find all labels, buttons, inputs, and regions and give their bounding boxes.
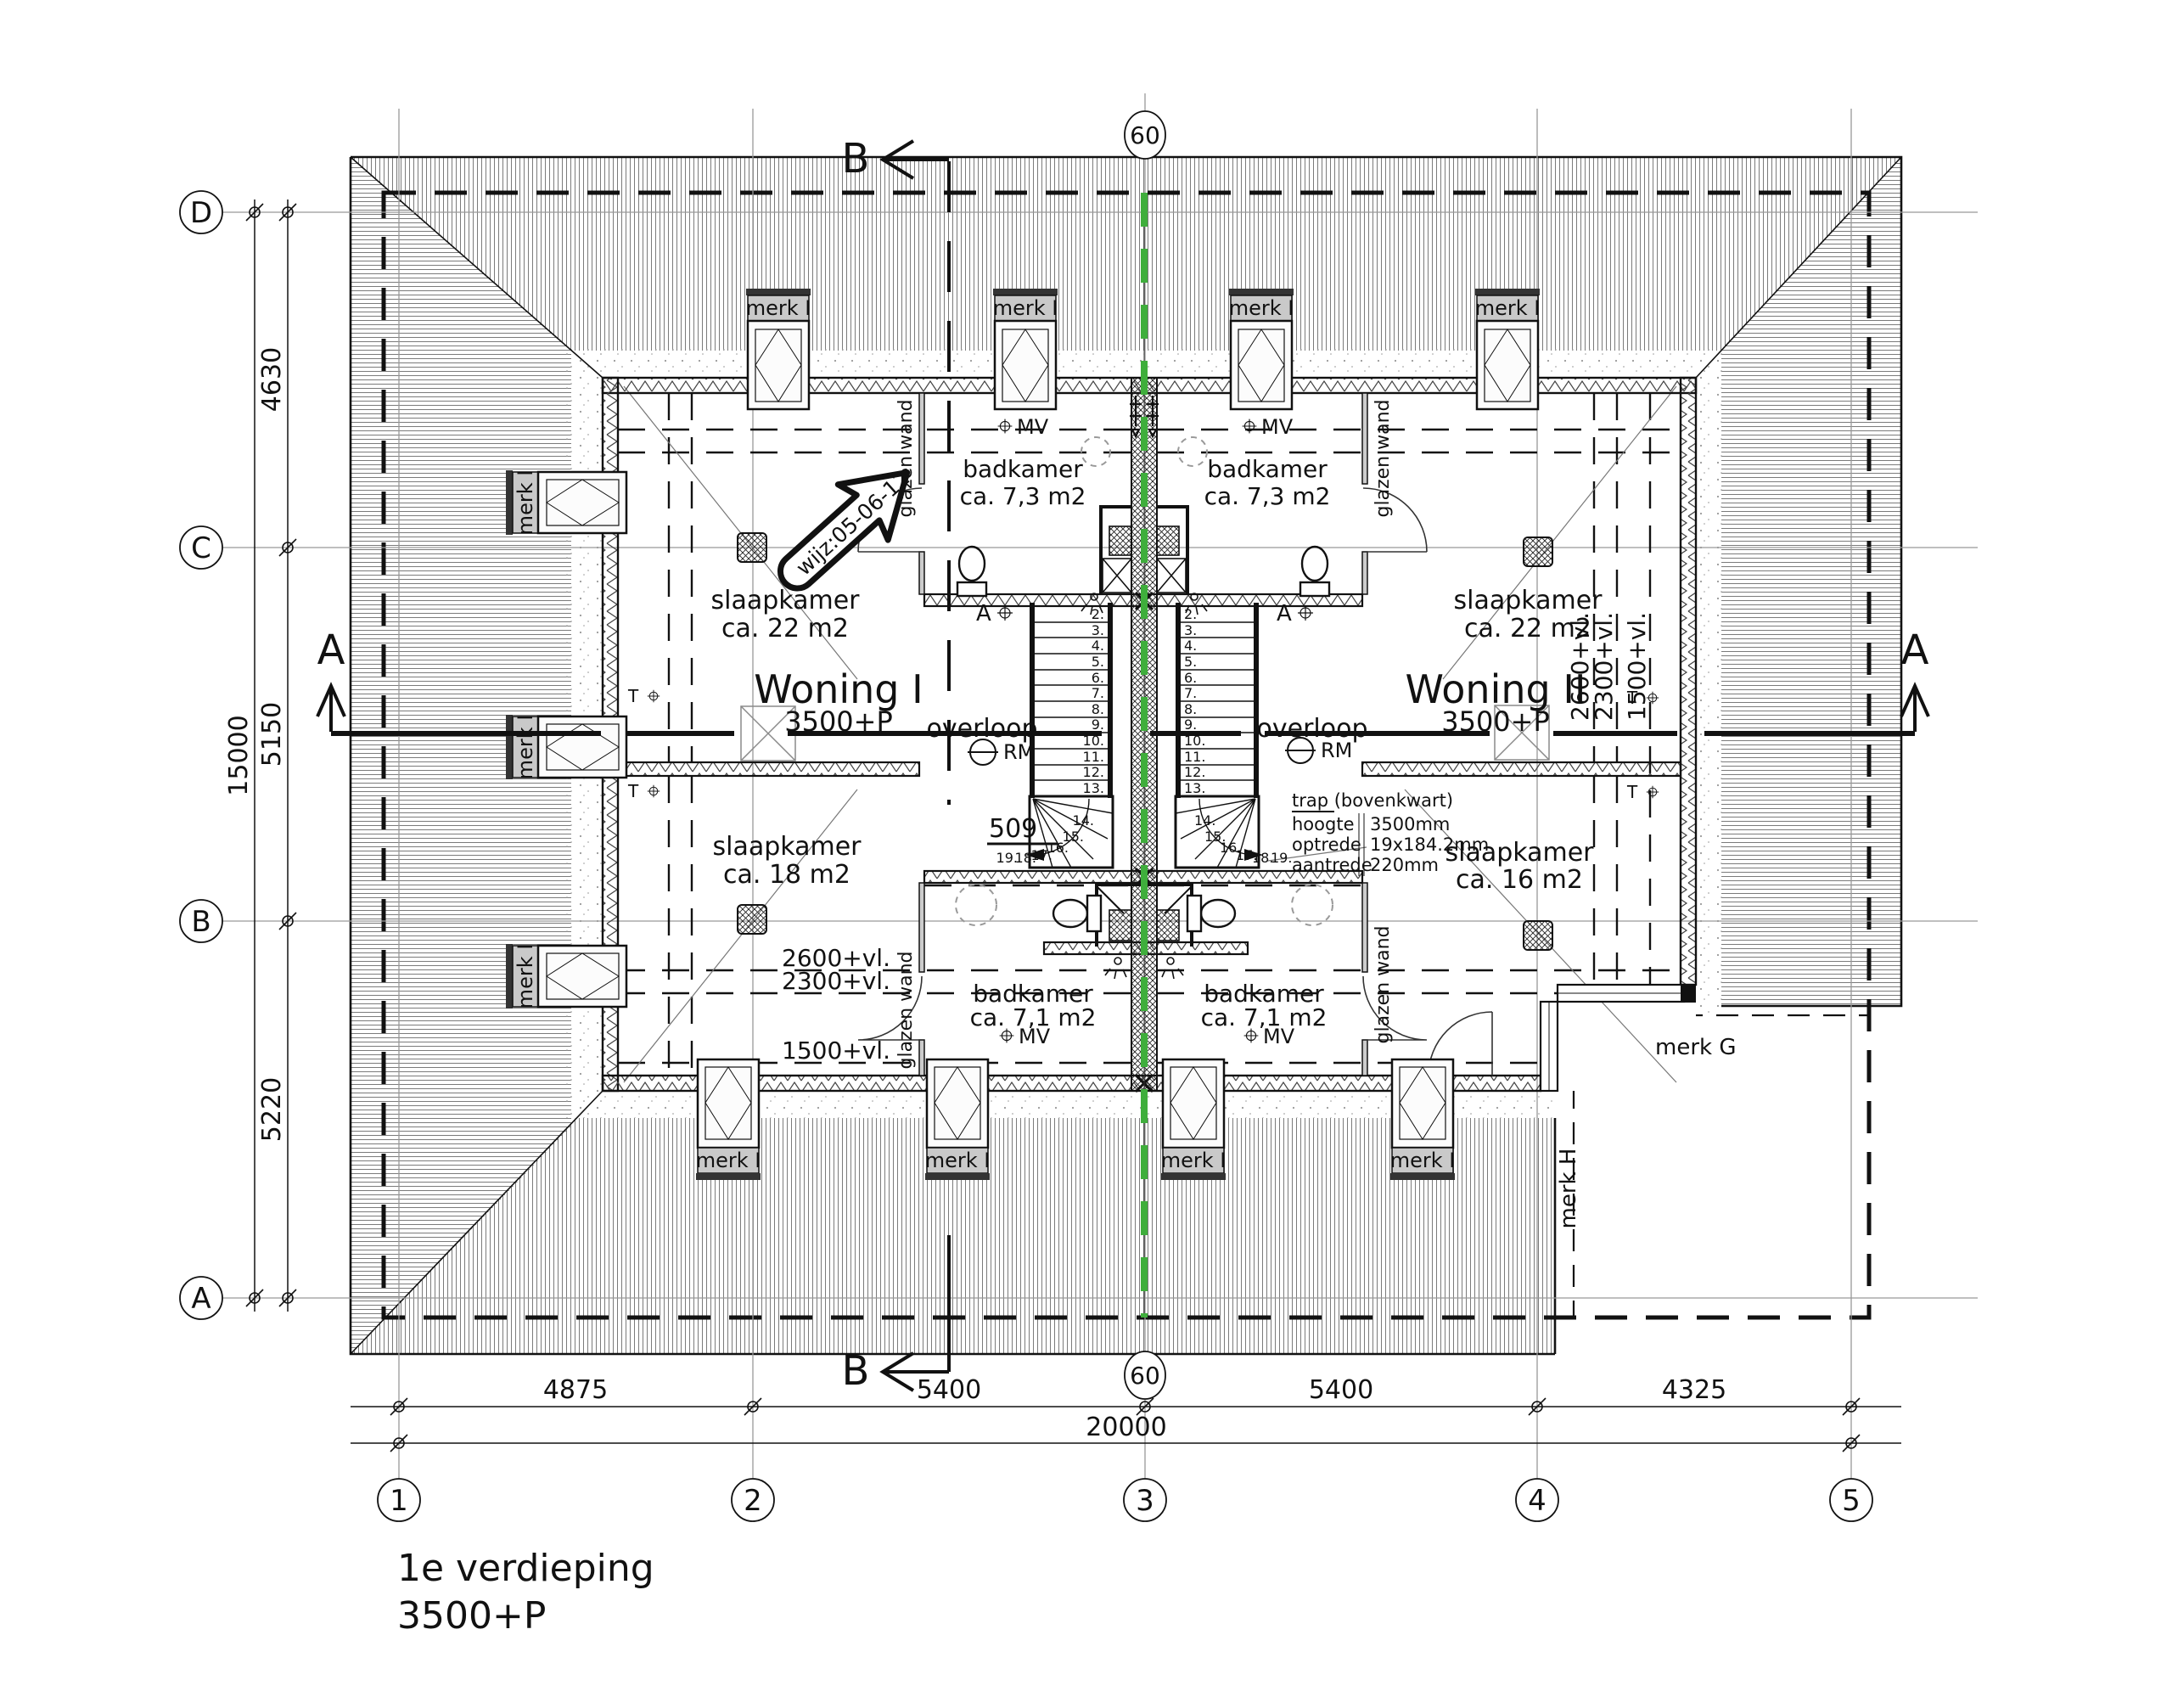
grid-col-label: 5 xyxy=(1842,1484,1861,1518)
trap-key: aantrede xyxy=(1292,855,1372,875)
merk-g-label: merk G xyxy=(1655,1035,1736,1060)
tread-number: 7. xyxy=(1184,685,1197,701)
dim-5400: 5400 xyxy=(917,1375,981,1405)
merk-i-label: merk I xyxy=(514,715,537,780)
merk-i-label: merk I xyxy=(514,944,537,1009)
glass-wall-label: glazen wand xyxy=(895,952,917,1070)
trap-title: trap (bovenkwart) xyxy=(1292,790,1453,811)
mv-label: MV xyxy=(1261,415,1294,439)
tread-number: 6. xyxy=(1092,670,1104,686)
merk-i-label: merk I xyxy=(1390,1149,1456,1172)
height-2300: 2300+vl. xyxy=(1590,612,1618,721)
merk-i-label: merk I xyxy=(1161,1149,1227,1172)
section-b-label: B xyxy=(842,135,870,183)
t-label: T xyxy=(1626,782,1638,802)
a-marker-label: A xyxy=(976,601,991,626)
grid-row-label: A xyxy=(191,1282,211,1316)
axis-60-label: 60 xyxy=(1130,121,1160,149)
height-2300: 2300+vl. xyxy=(782,967,890,995)
tread-number: 9. xyxy=(1184,716,1197,733)
room-label: slaapkamer xyxy=(1453,586,1603,615)
tread-number: 13. xyxy=(1083,780,1104,796)
dim-20000: 20000 xyxy=(1086,1413,1166,1442)
dormer-top: merk I xyxy=(993,289,1058,409)
grid-row-label: D xyxy=(190,196,212,230)
merk-i-label: merk I xyxy=(993,296,1058,320)
room-label: badkamer xyxy=(963,455,1083,483)
t-label: T xyxy=(627,686,639,706)
dim-4630: 4630 xyxy=(257,347,287,412)
tread-number: 4. xyxy=(1184,638,1197,654)
tread-number: 5. xyxy=(1092,654,1104,670)
a-marker-label: A xyxy=(1277,601,1292,626)
tread-number: 13. xyxy=(1184,780,1205,796)
trap-value: 19x184.2mm xyxy=(1370,834,1489,855)
tread-number: 18. xyxy=(1015,850,1036,866)
merk-h-label: merk H xyxy=(1556,1149,1581,1229)
room-label: badkamer xyxy=(1207,455,1328,483)
stair-ref-509: 509 xyxy=(989,814,1037,844)
room-label: slaapkamer xyxy=(712,832,862,862)
room-area: ca. 18 m2 xyxy=(723,860,850,890)
dormer-bottom: merk I xyxy=(1161,1059,1227,1180)
grid-col-label: 2 xyxy=(744,1484,762,1518)
room-area: ca. 7,3 m2 xyxy=(1204,482,1331,510)
tread-number: 5. xyxy=(1184,654,1197,670)
dormer-left: merk I xyxy=(506,715,626,780)
merk-i-label: merk I xyxy=(696,1149,761,1172)
tread-number: 7. xyxy=(1092,685,1104,701)
tread-number: 3. xyxy=(1184,622,1197,638)
tread-number: 8. xyxy=(1184,701,1197,717)
grid-col-label: 3 xyxy=(1136,1484,1154,1518)
dormer-bottom: merk I xyxy=(1390,1059,1456,1180)
trap-value: 3500mm xyxy=(1370,814,1450,834)
tread-number: 6. xyxy=(1184,670,1197,686)
grid-row-label: B xyxy=(191,905,211,939)
merk-i-label: merk I xyxy=(1475,296,1541,320)
glass-wall-label: glazen wand xyxy=(1372,400,1394,518)
tread-number: 2. xyxy=(1184,606,1197,622)
dormer-left: merk I xyxy=(506,944,626,1009)
height-1500: 1500+vl. xyxy=(782,1037,890,1065)
mv-label: MV xyxy=(1263,1025,1295,1048)
room-area: ca. 22 m2 xyxy=(721,614,849,643)
grid-row-label: C xyxy=(191,531,211,565)
grid-col-label: 1 xyxy=(390,1484,408,1518)
dormer-bottom: merk I xyxy=(696,1059,761,1180)
window-band-merk-h xyxy=(1541,1002,1558,1091)
tread-number: 14. xyxy=(1073,812,1094,829)
tread-number: 9. xyxy=(1092,716,1104,733)
dormer-bottom: merk I xyxy=(925,1059,991,1180)
rm-label: RM xyxy=(1321,739,1352,762)
tread-number: 12. xyxy=(1184,764,1205,780)
dormer-top: merk I xyxy=(746,289,811,409)
grid-bubbles-left: D C B A xyxy=(180,191,222,1319)
tread-number: 19. xyxy=(996,850,1018,866)
merk-i-label: merk I xyxy=(746,296,811,320)
merk-i-label: merk I xyxy=(1229,296,1294,320)
woning2-level: 3500+P xyxy=(1441,705,1550,738)
axis-60-label: 60 xyxy=(1130,1362,1160,1390)
tread-number: 19. xyxy=(1271,850,1292,866)
dormer-left: merk I xyxy=(506,470,626,536)
dormer-top: merk I xyxy=(1475,289,1541,409)
tread-number: 12. xyxy=(1083,764,1104,780)
t-label: T xyxy=(1626,688,1638,708)
dim-5220: 5220 xyxy=(257,1077,287,1142)
section-b-label: B xyxy=(842,1347,870,1395)
window-band-merk-g xyxy=(1558,985,1684,1002)
dim-4325: 4325 xyxy=(1662,1375,1726,1405)
rm-label: RM xyxy=(1003,740,1035,764)
tread-number: 11. xyxy=(1184,749,1205,765)
room-area: ca. 7,3 m2 xyxy=(960,482,1086,510)
dim-15000: 15000 xyxy=(224,715,254,795)
tread-number: 4. xyxy=(1092,638,1104,654)
glass-wall-label: glazen wand xyxy=(1372,926,1394,1044)
dim-4875: 4875 xyxy=(543,1375,608,1405)
dim-5400: 5400 xyxy=(1309,1375,1373,1405)
trap-key: hoogte xyxy=(1292,814,1355,834)
title-line1: 1e verdieping xyxy=(397,1547,654,1590)
trap-key: optrede xyxy=(1292,834,1361,855)
tread-number: 2. xyxy=(1092,606,1104,622)
merk-i-label: merk I xyxy=(925,1149,991,1172)
tread-number: 3. xyxy=(1092,622,1104,638)
dim-5150: 5150 xyxy=(257,702,287,767)
mv-label: MV xyxy=(1017,415,1049,439)
mv-label: MV xyxy=(1019,1025,1051,1048)
section-a-label: A xyxy=(317,626,345,674)
room-area: ca. 16 m2 xyxy=(1456,865,1583,895)
woning1-level: 3500+P xyxy=(784,705,893,738)
dormer-top: merk I xyxy=(1229,289,1294,409)
title-line2: 3500+P xyxy=(397,1594,546,1638)
trap-value: 220mm xyxy=(1370,855,1439,875)
section-a-label: A xyxy=(1901,626,1929,674)
merk-i-label: merk I xyxy=(514,470,537,536)
drawing-title: 1e verdieping 3500+P xyxy=(397,1547,654,1638)
tread-number: 14. xyxy=(1194,812,1215,829)
tread-number: 11. xyxy=(1083,749,1104,765)
grid-col-label: 4 xyxy=(1528,1484,1546,1518)
room-label: slaapkamer xyxy=(710,586,860,615)
t-label: T xyxy=(627,781,639,801)
grid-bubbles-bottom: 1 2 3 4 5 xyxy=(378,1479,1872,1521)
tread-number: 8. xyxy=(1092,701,1104,717)
floor-plan-drawing: 2. 3. 4. 5. 6. 7. 8. 9. 10. 11. 12. 13. … xyxy=(0,0,2178,1708)
